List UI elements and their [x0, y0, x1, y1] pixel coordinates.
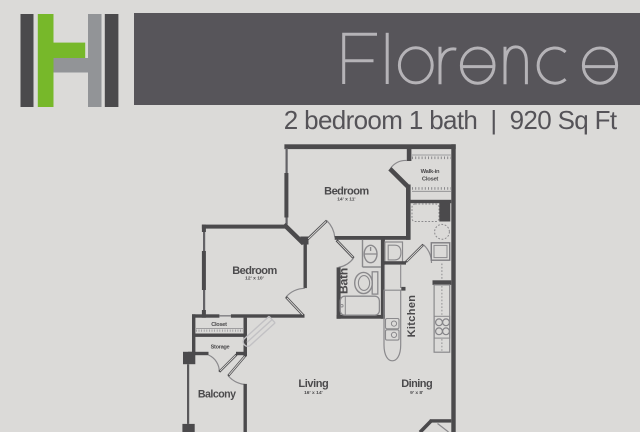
svg-text:Storage: Storage — [211, 345, 230, 351]
svg-text:Walk-in: Walk-in — [421, 169, 440, 175]
svg-text:16' x 14': 16' x 14' — [304, 390, 323, 396]
svg-text:14' x 11': 14' x 11' — [337, 197, 355, 203]
svg-text:Living: Living — [298, 378, 328, 390]
svg-text:Closet: Closet — [211, 322, 227, 328]
svg-text:Bath: Bath — [337, 268, 351, 294]
svg-text:Bedroom: Bedroom — [324, 186, 369, 198]
svg-text:12' x 10': 12' x 10' — [245, 276, 264, 282]
svg-text:9' x 8': 9' x 8' — [410, 390, 423, 396]
svg-text:Dining: Dining — [401, 378, 432, 390]
svg-text:Balcony: Balcony — [198, 388, 236, 400]
svg-text:Bedroom: Bedroom — [232, 265, 277, 277]
svg-text:Kitchen: Kitchen — [406, 295, 418, 338]
svg-text:2 bedroom 1 bath | 920 Sq Ft: 2 bedroom 1 bath | 920 Sq Ft — [284, 105, 618, 135]
svg-text:Closet: Closet — [422, 177, 439, 183]
